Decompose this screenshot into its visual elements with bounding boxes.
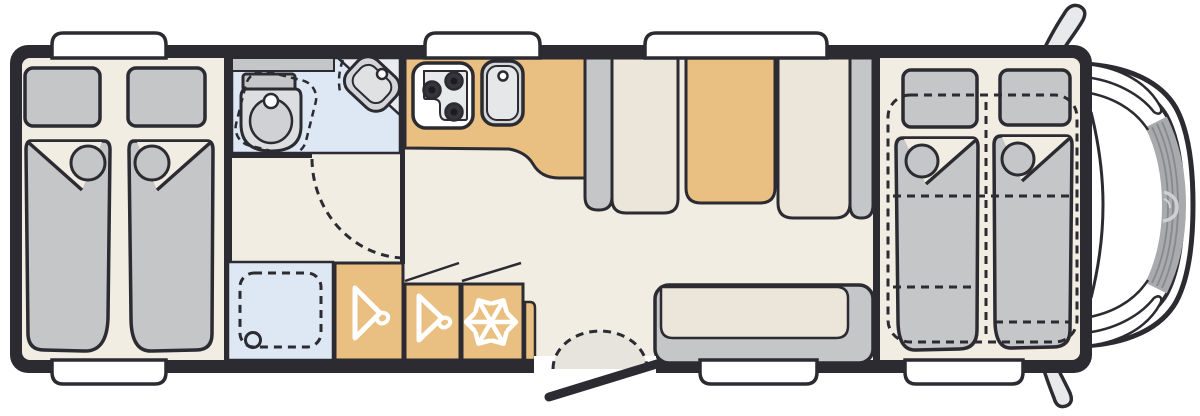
seat-backrest (585, 58, 612, 210)
window (425, 33, 540, 58)
dinette-table (686, 58, 775, 203)
sofa-cushion (661, 287, 848, 338)
dinette (585, 58, 873, 218)
seat-backrest (850, 58, 873, 218)
cabinet-end (525, 302, 535, 360)
side-sofa (655, 285, 873, 363)
drop-down-bed (896, 138, 978, 350)
burner-icon (446, 104, 463, 121)
twin-bed (26, 141, 110, 351)
burner-icon (446, 73, 463, 90)
bench-seat (778, 58, 850, 218)
pillow (25, 68, 100, 126)
pillow (903, 70, 977, 127)
pillow (128, 68, 205, 126)
window (700, 360, 817, 384)
motorhome-floorplan (0, 0, 1200, 416)
window (52, 360, 166, 384)
window (52, 33, 166, 58)
hob (413, 63, 473, 128)
shower (228, 262, 333, 360)
floorplan-canvas (0, 0, 1200, 416)
vanity-counter (232, 58, 334, 71)
tap-icon (499, 72, 508, 81)
window (645, 33, 827, 58)
bench-seat (612, 58, 678, 213)
kitchen-sink (482, 61, 523, 125)
pillow (1000, 70, 1070, 125)
window (905, 360, 1023, 384)
twin-bed (129, 141, 213, 351)
wardrobe (335, 263, 403, 360)
burner-icon (424, 82, 441, 99)
drop-down-bed (994, 136, 1072, 348)
